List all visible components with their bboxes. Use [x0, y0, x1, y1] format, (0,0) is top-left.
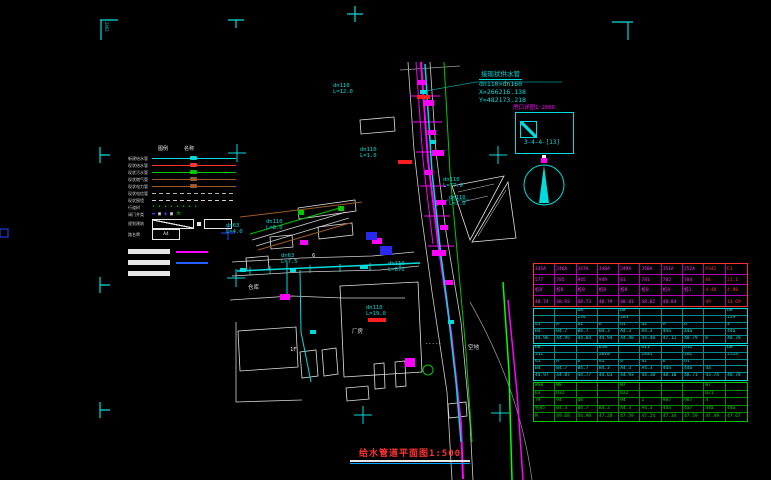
table-cell: 2810: [598, 353, 619, 360]
table-cell: B4.7: [555, 366, 576, 373]
table-cell: 48.78: [726, 373, 747, 380]
valve-symbol-icon: ◆: [164, 212, 167, 217]
table-cell: J51A: [662, 264, 683, 275]
sheet-code: 2862: [104, 22, 109, 32]
square-symbol-icon: [197, 222, 201, 226]
connection-note: 接现状供水管 dn110×dn160 X=266216.138 Y=482173…: [479, 70, 526, 104]
legend-item-swatch: [152, 186, 236, 187]
legend-item: 现状给水管: [128, 162, 236, 169]
title-underline: [350, 460, 470, 462]
tree-dot-icon: •: [158, 205, 161, 210]
table-cell: [640, 391, 661, 399]
table-cell: [577, 353, 598, 360]
table-cell: 47.34: [662, 413, 683, 421]
table-cell: 桩85: [534, 406, 555, 414]
valve-symbol-icon: ▣: [170, 212, 173, 217]
connection-note-x: X=266216.138: [479, 88, 526, 96]
pipe-label: dn110L=1.0: [360, 148, 377, 159]
table-cell: A: [555, 323, 576, 330]
table-row: J45AJ46AJ47AJ48AJ49AJ50AJ51AJ52AP342E1: [534, 264, 747, 275]
fittings-magenta: [280, 80, 453, 367]
legend-item: 现状电力管: [128, 183, 236, 190]
legend-item: 阀门井类▬▣◆▣木: [128, 211, 236, 218]
map-text-label: 仓库: [248, 286, 259, 292]
legend-bar-item: [128, 246, 236, 257]
table-cell: B4: [534, 366, 555, 373]
legend-item-swatch: [152, 172, 236, 173]
valve-symbol-icon: 木: [176, 212, 181, 217]
table-cell: 48.10: [662, 373, 683, 380]
table-cell: 4.98: [726, 285, 747, 296]
pipe-length: L=12.0: [333, 90, 353, 96]
table-cell: 48.82: [640, 296, 661, 307]
road-bar-icon: [128, 249, 170, 254]
legend-item-label: 新建给水管: [128, 156, 150, 162]
legend-item-swatch: [152, 179, 236, 180]
table-cell: B4.7: [577, 406, 598, 414]
pipe-length: L=4.0: [226, 230, 243, 236]
table-cell: [598, 391, 619, 399]
building-symbol-icon: [152, 219, 194, 229]
legend-item-label: 现状给水管: [128, 163, 150, 169]
table-cell: 44.98: [577, 413, 598, 421]
table-cell: 44.10: [640, 373, 661, 380]
table-cell: 949: [598, 275, 619, 286]
table-cell: 桩8: [598, 285, 619, 296]
legend-item-label: 现状污水管: [128, 170, 150, 176]
table-row: WS8W8W7W7: [534, 383, 747, 391]
legend-line-icon: [152, 165, 236, 166]
table-cell: [662, 383, 683, 391]
table-cell: 987: [683, 398, 704, 406]
table-cell: D8: [577, 309, 598, 316]
table-cell: 44a: [662, 329, 683, 336]
table-cell: [619, 353, 640, 360]
table-cell: b: [598, 323, 619, 330]
pipe-label: dn110L=8.0: [266, 220, 283, 231]
legend-item-label: 现状电信管: [128, 191, 150, 197]
table-cell: A4.3: [640, 366, 661, 373]
table-cell: [704, 329, 726, 336]
legend-item: 路名牌A4: [128, 229, 236, 240]
table-cell: [555, 316, 576, 323]
table-cell: [662, 353, 683, 360]
map-text-label: 厂房: [352, 330, 363, 336]
table-cell: J49A: [619, 264, 640, 275]
road-edges: [230, 62, 532, 480]
table-cell: 44.96: [534, 336, 555, 343]
pipe-label: dn63L=7.5: [281, 254, 298, 265]
table-cell: B4.7: [577, 366, 598, 373]
table-cell: D8: [619, 309, 640, 316]
table-cell: [640, 383, 661, 391]
legend-bars: [128, 246, 236, 279]
pipe-length: L=77.0: [443, 184, 463, 190]
table-cell: d2: [640, 323, 661, 330]
table-cell: 44.93: [619, 373, 640, 380]
table-cell: 44.48: [640, 336, 661, 343]
drawing-title-text: 给水管道平面图1:500: [350, 446, 470, 459]
table-cell: 43.74: [704, 373, 726, 380]
table-cell: [726, 391, 747, 399]
table-cell: b: [577, 360, 598, 367]
table-cell: 785: [555, 275, 576, 286]
table-row: 桩8桩8桩8桩8桩8桩8桩8桩14-4B4.98: [534, 285, 747, 296]
table-cell: 48.81: [619, 296, 640, 307]
legend-item: 行道树••••••••: [128, 204, 236, 211]
table-cell: 94: [619, 398, 640, 406]
table-cell: [662, 391, 683, 399]
table-cell: J48A: [598, 264, 619, 275]
table-cell: 94: [555, 398, 576, 406]
table-cell: WS8: [534, 383, 555, 391]
table-cell: [683, 391, 704, 399]
table-cell: 283: [619, 316, 640, 323]
legend-line-marker: [190, 156, 197, 160]
table-cell: 47.59: [619, 413, 640, 421]
table-cell: J46A: [555, 264, 576, 275]
valve-symbol-icon: ▬: [152, 212, 155, 217]
table-cell: 14.69: [726, 296, 747, 307]
table-cell: d1: [534, 360, 555, 367]
table-cell: d1: [619, 323, 640, 330]
table-section: D8D8D8234283229d1Ad1bd1d2MbxB4B4.7B4.7B4…: [533, 308, 748, 344]
table-cell: 44a: [726, 329, 747, 336]
table-cell: D8: [534, 346, 555, 353]
table-cell: D32: [555, 391, 576, 399]
legend-line-marker: [190, 177, 197, 181]
table-cell: 781: [640, 275, 661, 286]
table-cell: 44.95: [555, 336, 576, 343]
pipe-label: dn110L=12.0: [333, 84, 353, 95]
legend-bar-item: [128, 268, 236, 279]
table-cell: [555, 309, 576, 316]
table-cell: [726, 360, 747, 367]
table-cell: [619, 346, 640, 353]
table-cell: A4.3: [619, 406, 640, 414]
legend-line-icon: [152, 179, 236, 180]
legend-item: 新建给水管: [128, 155, 236, 162]
table-cell: 桩8: [555, 285, 576, 296]
pipe-length: L=7.0: [449, 202, 466, 208]
pipe-sewer-green: [250, 62, 512, 480]
table-cell: 44.63: [598, 373, 619, 380]
table-cell: 44.94: [598, 336, 619, 343]
table-cell: B4.3: [555, 406, 576, 414]
legend-line-icon: [152, 158, 236, 159]
valve-symbol-icon: ▣: [158, 212, 161, 217]
table-cell: 47.59: [683, 413, 704, 421]
table-cell: [555, 346, 576, 353]
legend: 图例 名称 新建给水管现状给水管现状污水管现状燃气管现状电力管现状电信管现状围墙…: [128, 145, 236, 279]
table-row: D8D10D11D12D8: [534, 346, 747, 353]
table-cell: 81: [619, 275, 640, 286]
map-text-label: 空地: [468, 346, 479, 352]
table-cell: B4.7: [555, 329, 576, 336]
drawing-title: 给水管道平面图1:500: [350, 446, 470, 464]
table-cell: [662, 309, 683, 316]
table-cell: 47.24: [640, 413, 661, 421]
table-cell: 79: [534, 398, 555, 406]
table-cell: [683, 316, 704, 323]
table-cell: 44a: [662, 406, 683, 414]
legend-headers: 图例 名称: [158, 145, 236, 152]
legend-item-label: 现状燃气管: [128, 177, 150, 183]
table-cell: 44.84: [577, 336, 598, 343]
table-cell: [534, 309, 555, 316]
table-cell: [726, 383, 747, 391]
table-row: M49.6844.9847.2847.5947.2447.3447.5947.4…: [534, 413, 747, 421]
tree-dot-icon: •: [188, 205, 191, 210]
table-cell: 49: [704, 296, 726, 307]
map-text-label: -----: [425, 342, 442, 348]
table-cell: A4.3: [640, 329, 661, 336]
table-cell: D22: [619, 391, 640, 399]
table-cell: D8: [726, 309, 747, 316]
table-cell: D11: [640, 346, 661, 353]
legend-item-swatch: ▬▣◆▣木: [152, 212, 236, 217]
table-row: 234283229: [534, 316, 747, 323]
table-cell: [598, 309, 619, 316]
table-cell: [598, 383, 619, 391]
table-cell: D3: [534, 391, 555, 399]
connection-note-size: dn110×dn160: [479, 80, 526, 88]
table-cell: [598, 398, 619, 406]
table-cell: 桩8: [662, 285, 683, 296]
table-cell: [704, 353, 726, 360]
table-cell: D12: [683, 346, 704, 353]
table-section: J45AJ46AJ47AJ48AJ49AJ50AJ51AJ52AP342E157…: [533, 263, 748, 307]
table-cell: D21: [704, 391, 726, 399]
table-cell: B4.3: [598, 406, 619, 414]
table-cell: b: [662, 360, 683, 367]
pipe-label: dn110L=7.0: [449, 196, 466, 207]
table-cell: 282: [683, 353, 704, 360]
detail-ref-label: 甩口详图1:2000: [513, 103, 555, 111]
table-cell: 782: [662, 275, 683, 286]
table-row: B4B4.7B4.7B4.3A4.3A4.344a44a4a: [534, 366, 747, 373]
tree-dot-icon: •: [152, 205, 155, 210]
table-cell: [555, 353, 576, 360]
table-row: 48.7448.9348.7348.7948.8148.8248.844914.…: [534, 296, 747, 307]
table-row: 232281028312822513: [534, 353, 747, 360]
road-bar-icon: [128, 271, 170, 276]
table-cell: 4a: [704, 366, 726, 373]
elevation-table[interactable]: J45AJ46AJ47AJ48AJ49AJ50AJ51AJ52AP342E157…: [533, 263, 748, 423]
table-cell: [683, 309, 704, 316]
table-cell: J50A: [640, 264, 661, 275]
legend-extra-line: [176, 251, 208, 253]
legend-item-swatch: A4: [152, 229, 236, 240]
legend-item: 现状燃气管: [128, 176, 236, 183]
legend-item-swatch: [152, 158, 236, 159]
legend-item-label: 现状围墙: [128, 198, 150, 204]
table-cell: 84: [704, 275, 726, 286]
table-cell: [534, 316, 555, 323]
table-cell: 44.97: [534, 373, 555, 380]
table-cell: 桩8: [619, 285, 640, 296]
legend-line-icon: [152, 186, 236, 187]
table-cell: 48.79: [683, 336, 704, 343]
table-cell: 2513: [726, 353, 747, 360]
table-cell: 4: [704, 398, 726, 406]
table-cell: 47.49: [704, 413, 726, 421]
table-cell: d1: [683, 360, 704, 367]
label-box-icon: A4: [152, 229, 180, 240]
legend-item-label: 现状电力管: [128, 184, 150, 190]
table-cell: d1: [577, 323, 598, 330]
table-cell: [683, 296, 704, 307]
table-cell: [683, 383, 704, 391]
table-cell: J52A: [683, 264, 704, 275]
table-row: 7994489419879874: [534, 398, 747, 406]
table-cell: x: [726, 323, 747, 330]
table-cell: 47.11: [662, 336, 683, 343]
tree-dot-icon: •: [194, 205, 197, 210]
table-cell: 21.1: [726, 275, 747, 286]
buildings: [238, 117, 516, 418]
table-cell: 48.93: [555, 296, 576, 307]
table-cell: 44.77: [577, 373, 598, 380]
legend-items: 新建给水管现状给水管现状污水管现状燃气管现状电力管现状电信管现状围墙行道树•••…: [128, 155, 236, 240]
legend-bar-item: [128, 257, 236, 268]
pipe-label: dn110L=77.0: [443, 178, 463, 189]
north-arrow-icon: [518, 155, 570, 211]
pipe-label: dn110L=19.0: [366, 306, 386, 317]
table-cell: 49.68: [555, 413, 576, 421]
table-cell: 48.73: [577, 296, 598, 307]
table-cell: 48.84: [662, 296, 683, 307]
table-cell: [726, 366, 747, 373]
table-cell: A4.3: [640, 406, 661, 414]
table-cell: 48.71: [683, 373, 704, 380]
pipe-existing-magenta: [410, 62, 523, 480]
table-cell: 229: [726, 316, 747, 323]
legend-item-label: 规划建筑: [128, 221, 150, 227]
table-cell: 44.87: [555, 373, 576, 380]
table-cell: A: [555, 360, 576, 367]
connection-note-title: 接现状供水管: [479, 70, 522, 80]
table-cell: d1: [598, 360, 619, 367]
table-cell: [704, 323, 726, 330]
legend-item-swatch: [152, 165, 236, 166]
table-cell: d1: [640, 360, 661, 367]
table-row: 桩85B4.3B4.7B4.3A4.3A4.344a4a744a44a: [534, 406, 747, 414]
detail-ref-box[interactable]: 3-4-4-[13]: [515, 112, 574, 154]
table-cell: 1: [640, 398, 661, 406]
table-cell: M: [534, 413, 555, 421]
table-cell: B4.3: [598, 366, 619, 373]
table-cell: 44a: [683, 329, 704, 336]
table-cell: 44.98: [619, 336, 640, 343]
table-cell: 48.79: [598, 296, 619, 307]
table-cell: 44a: [662, 366, 683, 373]
table-cell: 987: [662, 398, 683, 406]
table-cell: [577, 383, 598, 391]
table-cell: [662, 316, 683, 323]
table-cell: [726, 398, 747, 406]
title-underline-2: [350, 463, 470, 464]
legend-line-marker: [190, 163, 197, 167]
table-cell: 4a7: [683, 406, 704, 414]
legend-item: 现状围墙: [128, 197, 236, 204]
tree-dot-icon: •: [176, 205, 179, 210]
legend-item-swatch: [152, 219, 236, 229]
legend-item-swatch: ••••••••: [152, 205, 236, 210]
table-cell: 784: [683, 275, 704, 286]
legend-item: 现状电信管: [128, 190, 236, 197]
table-cell: 2831: [640, 353, 661, 360]
table-cell: J45A: [534, 264, 555, 275]
table-cell: [704, 346, 726, 353]
table-cell: J47A: [577, 264, 598, 275]
legend-line-icon: [152, 172, 236, 173]
map-text-label: 6: [312, 254, 315, 260]
table-cell: M: [662, 323, 683, 330]
pipe-length: L=1.0: [360, 154, 377, 160]
table-cell: E1: [726, 264, 747, 275]
table-cell: B4.3: [598, 329, 619, 336]
table-cell: 577: [534, 275, 555, 286]
table-row: 44.9744.8744.7744.6344.9344.1048.1048.71…: [534, 373, 747, 380]
table-cell: b: [619, 360, 640, 367]
table-cell: d1: [534, 323, 555, 330]
tree-dot-icon: •: [164, 205, 167, 210]
table-row: 44.9644.9544.8444.9444.9844.4847.1148.79…: [534, 336, 747, 343]
table-cell: [577, 391, 598, 399]
table-cell: 桩1: [683, 285, 704, 296]
legend-item-label: 阀门井类: [128, 212, 150, 218]
table-cell: [704, 316, 726, 323]
table-row: d1Ad1bd1d2Mbx: [534, 323, 747, 330]
legend-line-icon: [152, 200, 236, 201]
table-cell: [640, 309, 661, 316]
table-cell: [577, 346, 598, 353]
tree-dot-icon: •: [170, 205, 173, 210]
legend-line-marker: [190, 184, 197, 188]
legend-header-symbol: 图例: [158, 145, 168, 152]
table-cell: 44a: [683, 366, 704, 373]
detail-ref-code: 3-4-4-[13]: [524, 139, 560, 146]
pipe-length: L=8.0: [266, 226, 283, 232]
cad-viewport[interactable]: 2862 接现状供水管 dn110×dn160 X=266216.138 Y=4…: [0, 0, 771, 480]
table-row: d1Abd1bd1bd1: [534, 360, 747, 367]
table-cell: A4.3: [619, 366, 640, 373]
table-cell: 232: [534, 353, 555, 360]
table-section: D8D10D11D12D8232281028312822513d1Abd1bd1…: [533, 345, 748, 381]
table-row: B4B4.7B4.7B4.3A4.3A4.344a44a44a: [534, 329, 747, 336]
table-cell: B4.7: [577, 329, 598, 336]
table-cell: W7: [704, 383, 726, 391]
table-cell: 44a: [726, 406, 747, 414]
pipe-label: dn63L=4.0: [226, 224, 243, 235]
table-cell: 47.28: [598, 413, 619, 421]
pipe-length: L=7.5: [281, 260, 298, 266]
legend-item-label: 行道树: [128, 205, 150, 211]
table-section: WS8W8W7W7D3D32D22D217994489419879874桩85B…: [533, 382, 748, 422]
legend-extra-line: [176, 262, 208, 264]
legend-item-label: 路名牌: [128, 232, 150, 238]
table-cell: 47.67: [726, 413, 747, 421]
table-cell: 44a: [704, 406, 726, 414]
table-row: 577785945949817817827848421.1: [534, 275, 747, 286]
table-cell: D8: [726, 346, 747, 353]
table-row: D8D8D8: [534, 309, 747, 316]
legend-line-marker: [190, 170, 197, 174]
table-cell: B4: [534, 329, 555, 336]
tree-dot-icon: •: [182, 205, 185, 210]
table-cell: [640, 316, 661, 323]
